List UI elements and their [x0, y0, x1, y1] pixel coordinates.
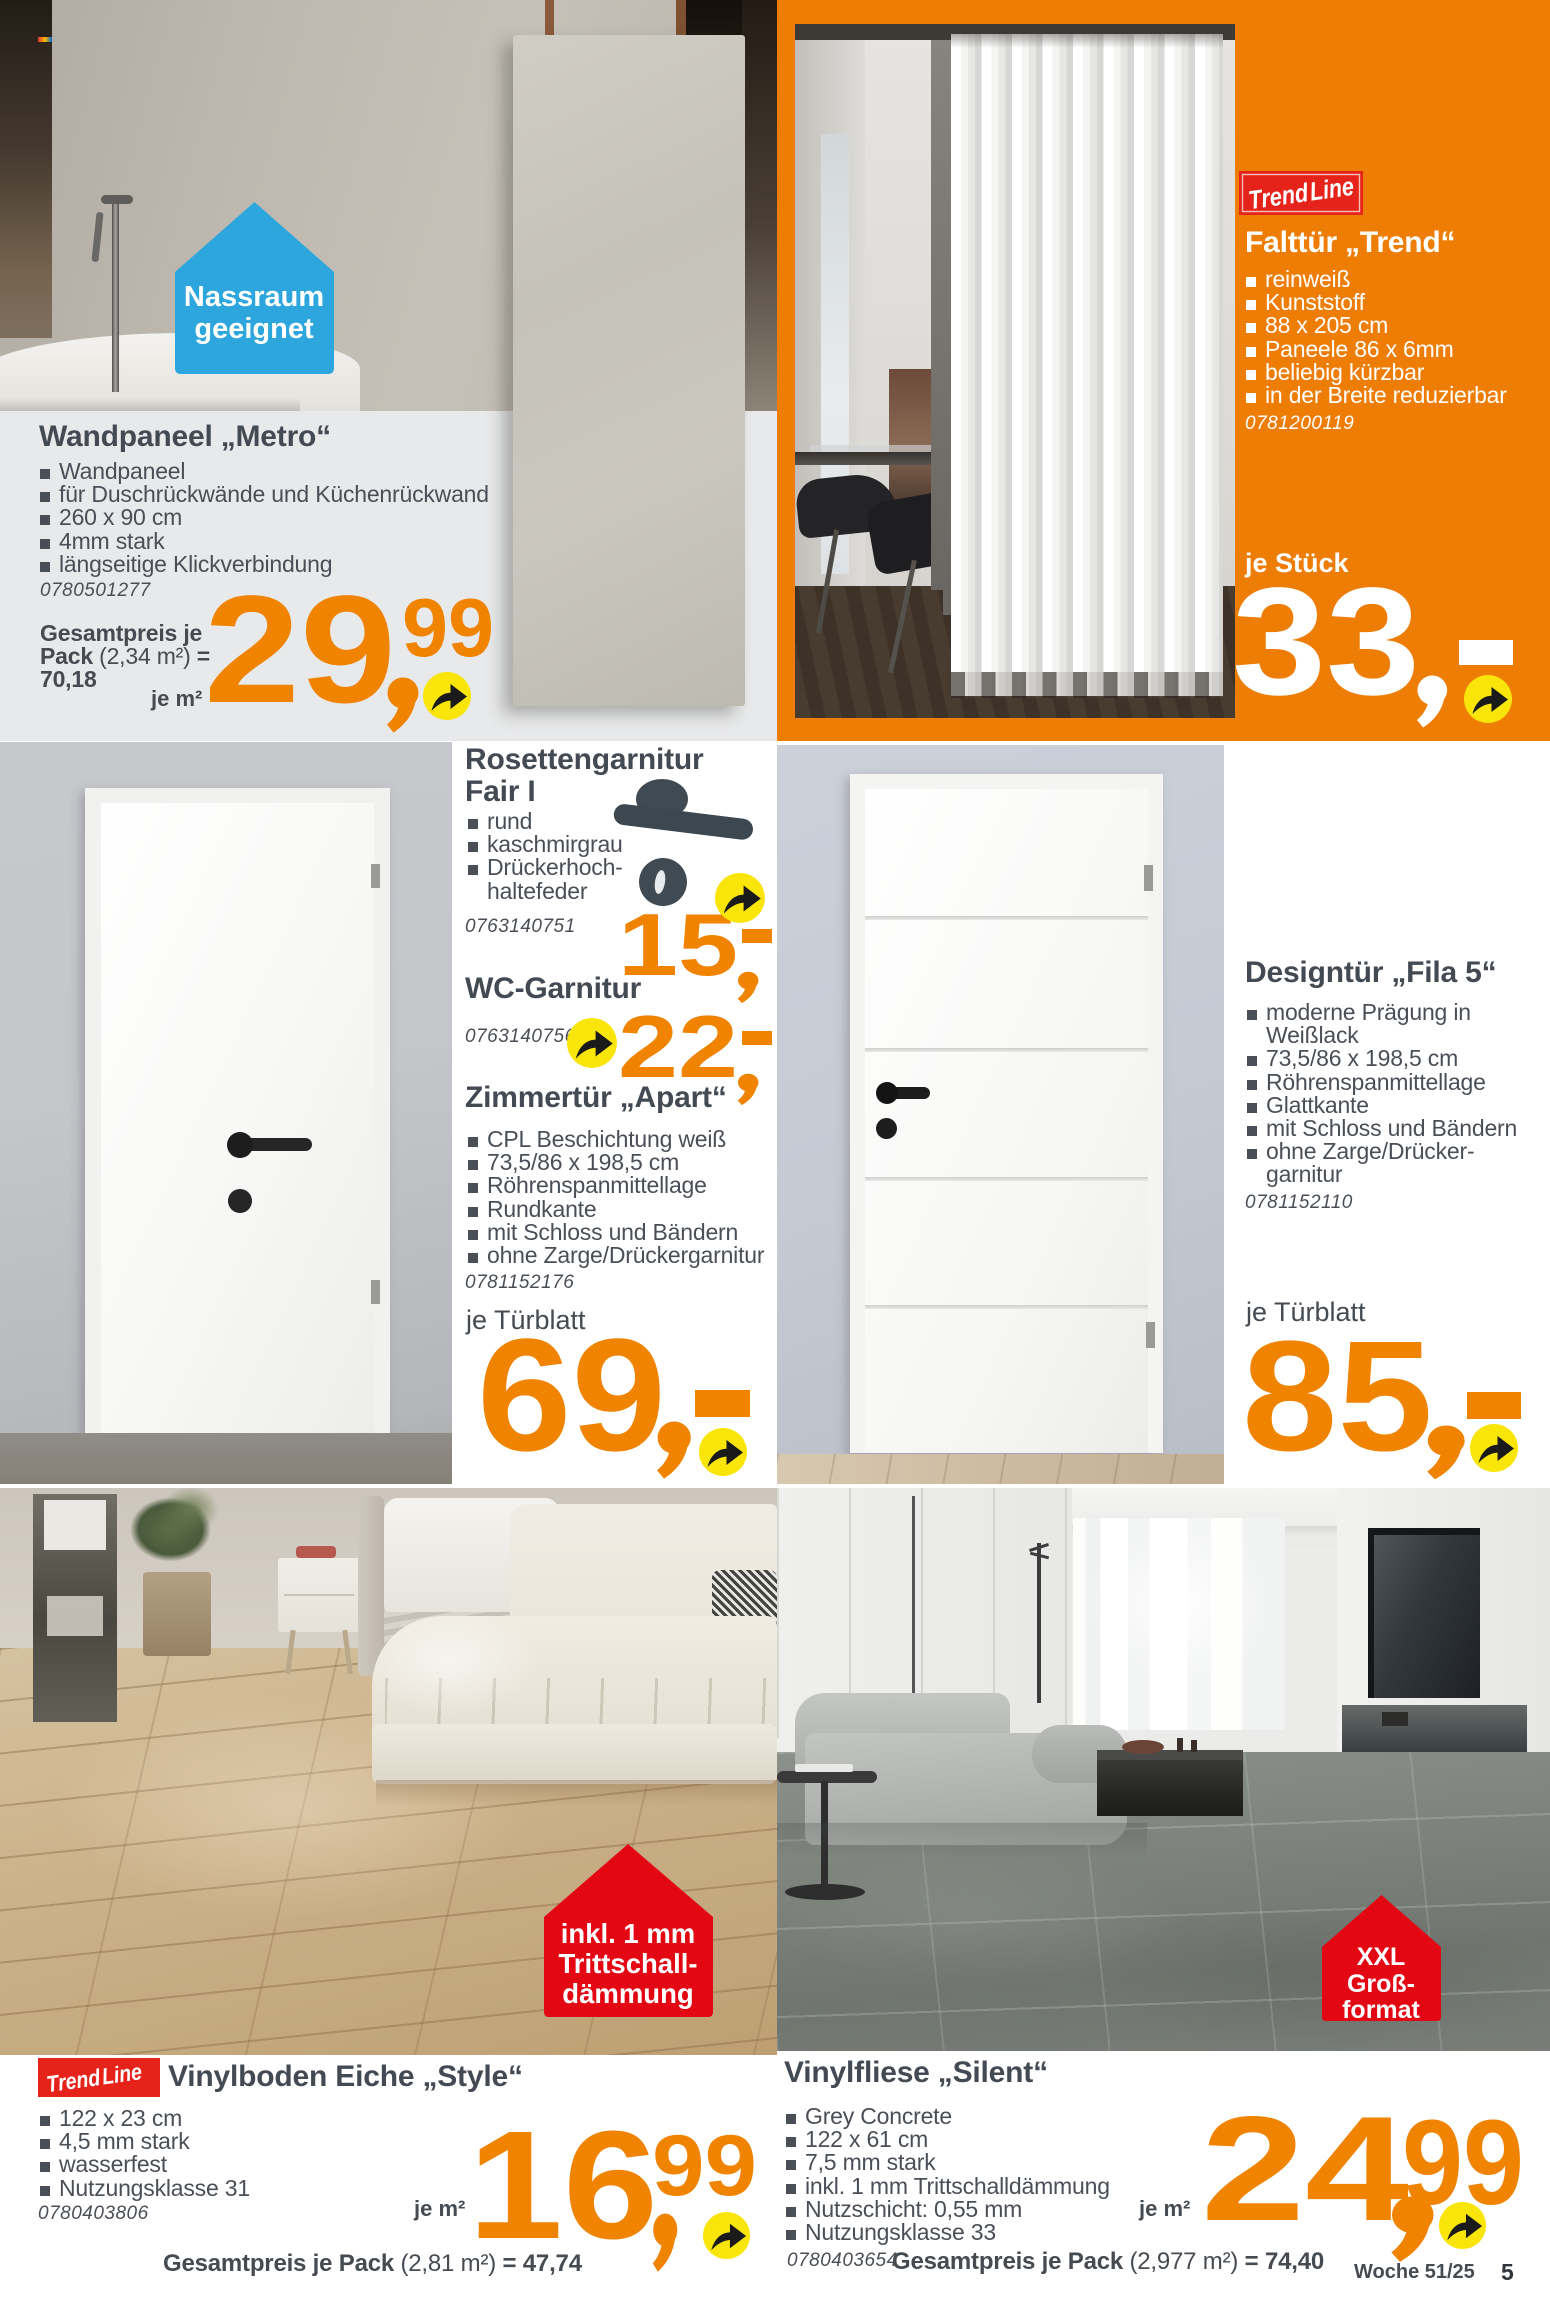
- svg-text:69: 69: [477, 1305, 666, 1484]
- svg-text:24: 24: [1201, 2085, 1409, 2252]
- svg-text:22: 22: [618, 997, 738, 1096]
- svg-text:29: 29: [204, 564, 396, 735]
- svg-text:16: 16: [468, 2099, 658, 2271]
- svg-text:85: 85: [1242, 1309, 1433, 1484]
- svg-text:33: 33: [1232, 556, 1420, 727]
- svg-text:99: 99: [402, 581, 494, 674]
- svg-text:99: 99: [652, 2118, 757, 2214]
